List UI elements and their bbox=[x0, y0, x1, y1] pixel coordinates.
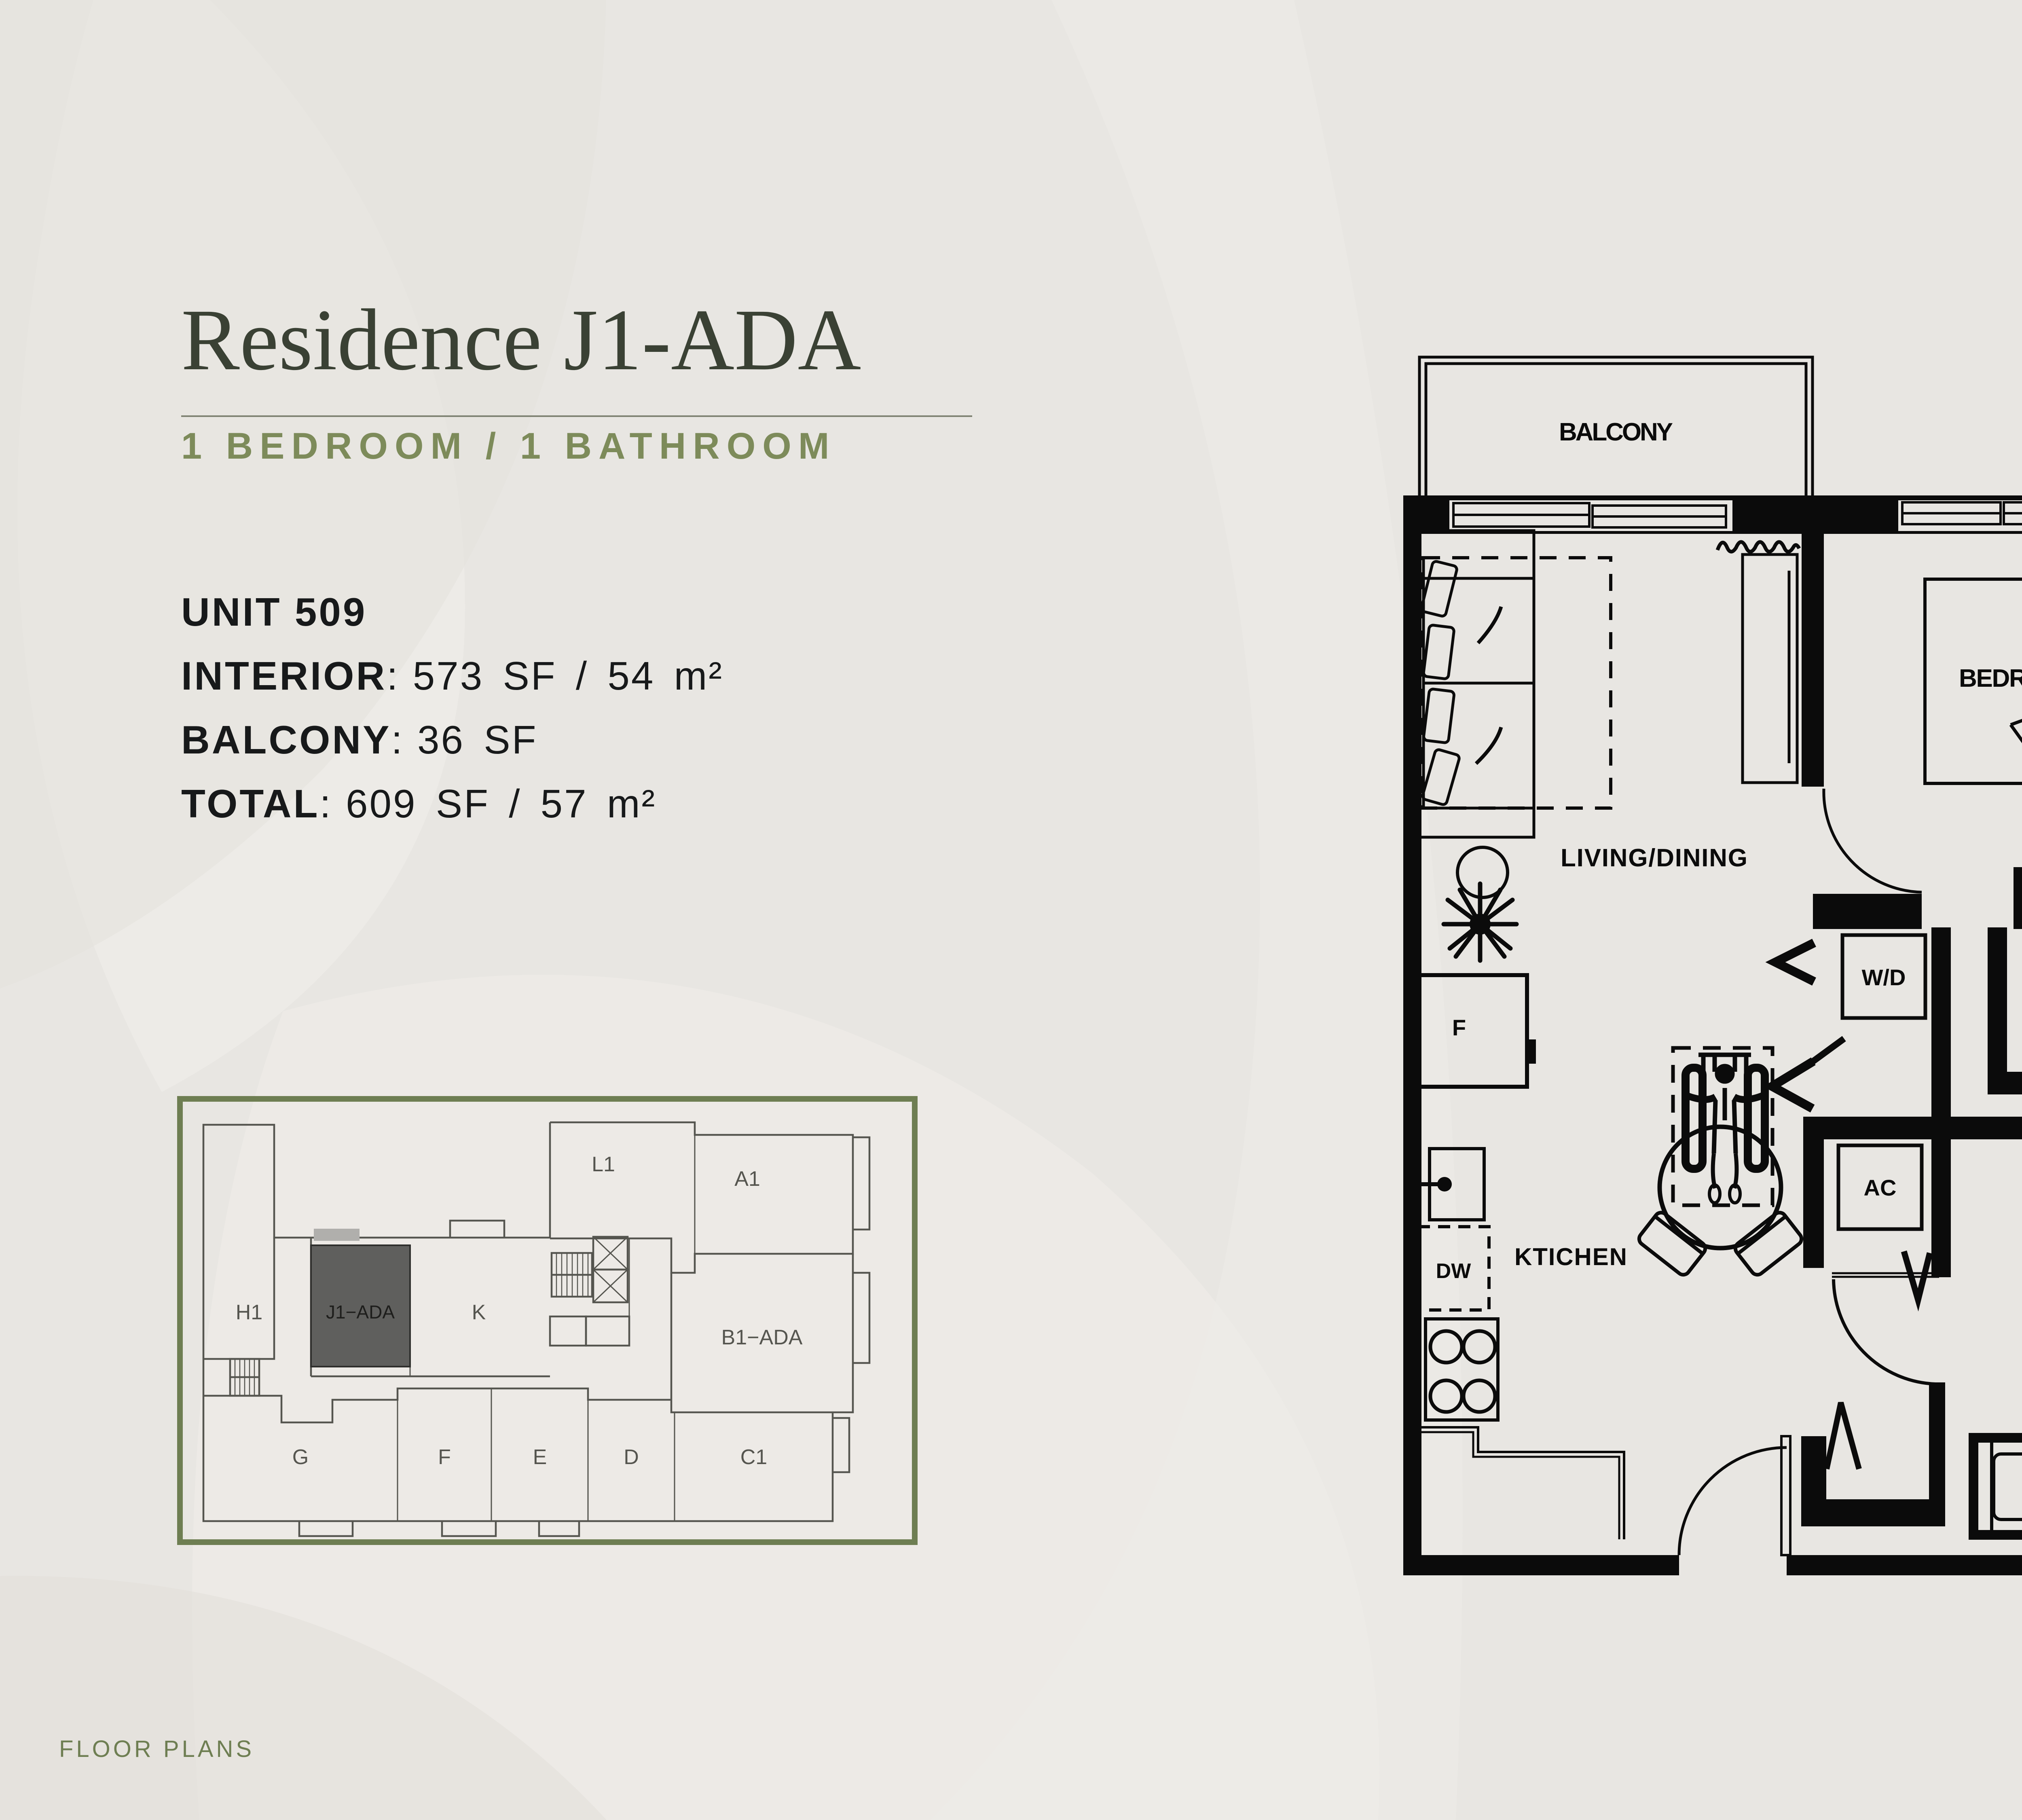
svg-text:LIVING/DINING: LIVING/DINING bbox=[1561, 844, 1747, 872]
svg-text:K: K bbox=[472, 1301, 486, 1324]
svg-text:G: G bbox=[292, 1445, 309, 1469]
svg-text:L1: L1 bbox=[592, 1153, 615, 1176]
svg-text:W/D: W/D bbox=[1862, 965, 1906, 990]
svg-text:BALCONY: BALCONY bbox=[1559, 418, 1673, 446]
svg-text:C1: C1 bbox=[740, 1445, 767, 1469]
svg-text:A1: A1 bbox=[734, 1167, 760, 1191]
svg-text:F: F bbox=[1452, 1015, 1466, 1040]
svg-text:KTICHEN: KTICHEN bbox=[1514, 1243, 1627, 1270]
svg-text:F: F bbox=[438, 1445, 451, 1469]
svg-text:E: E bbox=[533, 1445, 547, 1469]
svg-text:H1: H1 bbox=[236, 1301, 262, 1324]
svg-text:B1−ADA: B1−ADA bbox=[721, 1326, 803, 1349]
svg-text:J1−ADA: J1−ADA bbox=[326, 1302, 395, 1323]
svg-text:AC: AC bbox=[1864, 1175, 1897, 1200]
svg-text:D: D bbox=[624, 1445, 639, 1469]
svg-text:BEDROOM: BEDROOM bbox=[1959, 665, 2022, 692]
svg-text:DW: DW bbox=[1436, 1259, 1472, 1283]
